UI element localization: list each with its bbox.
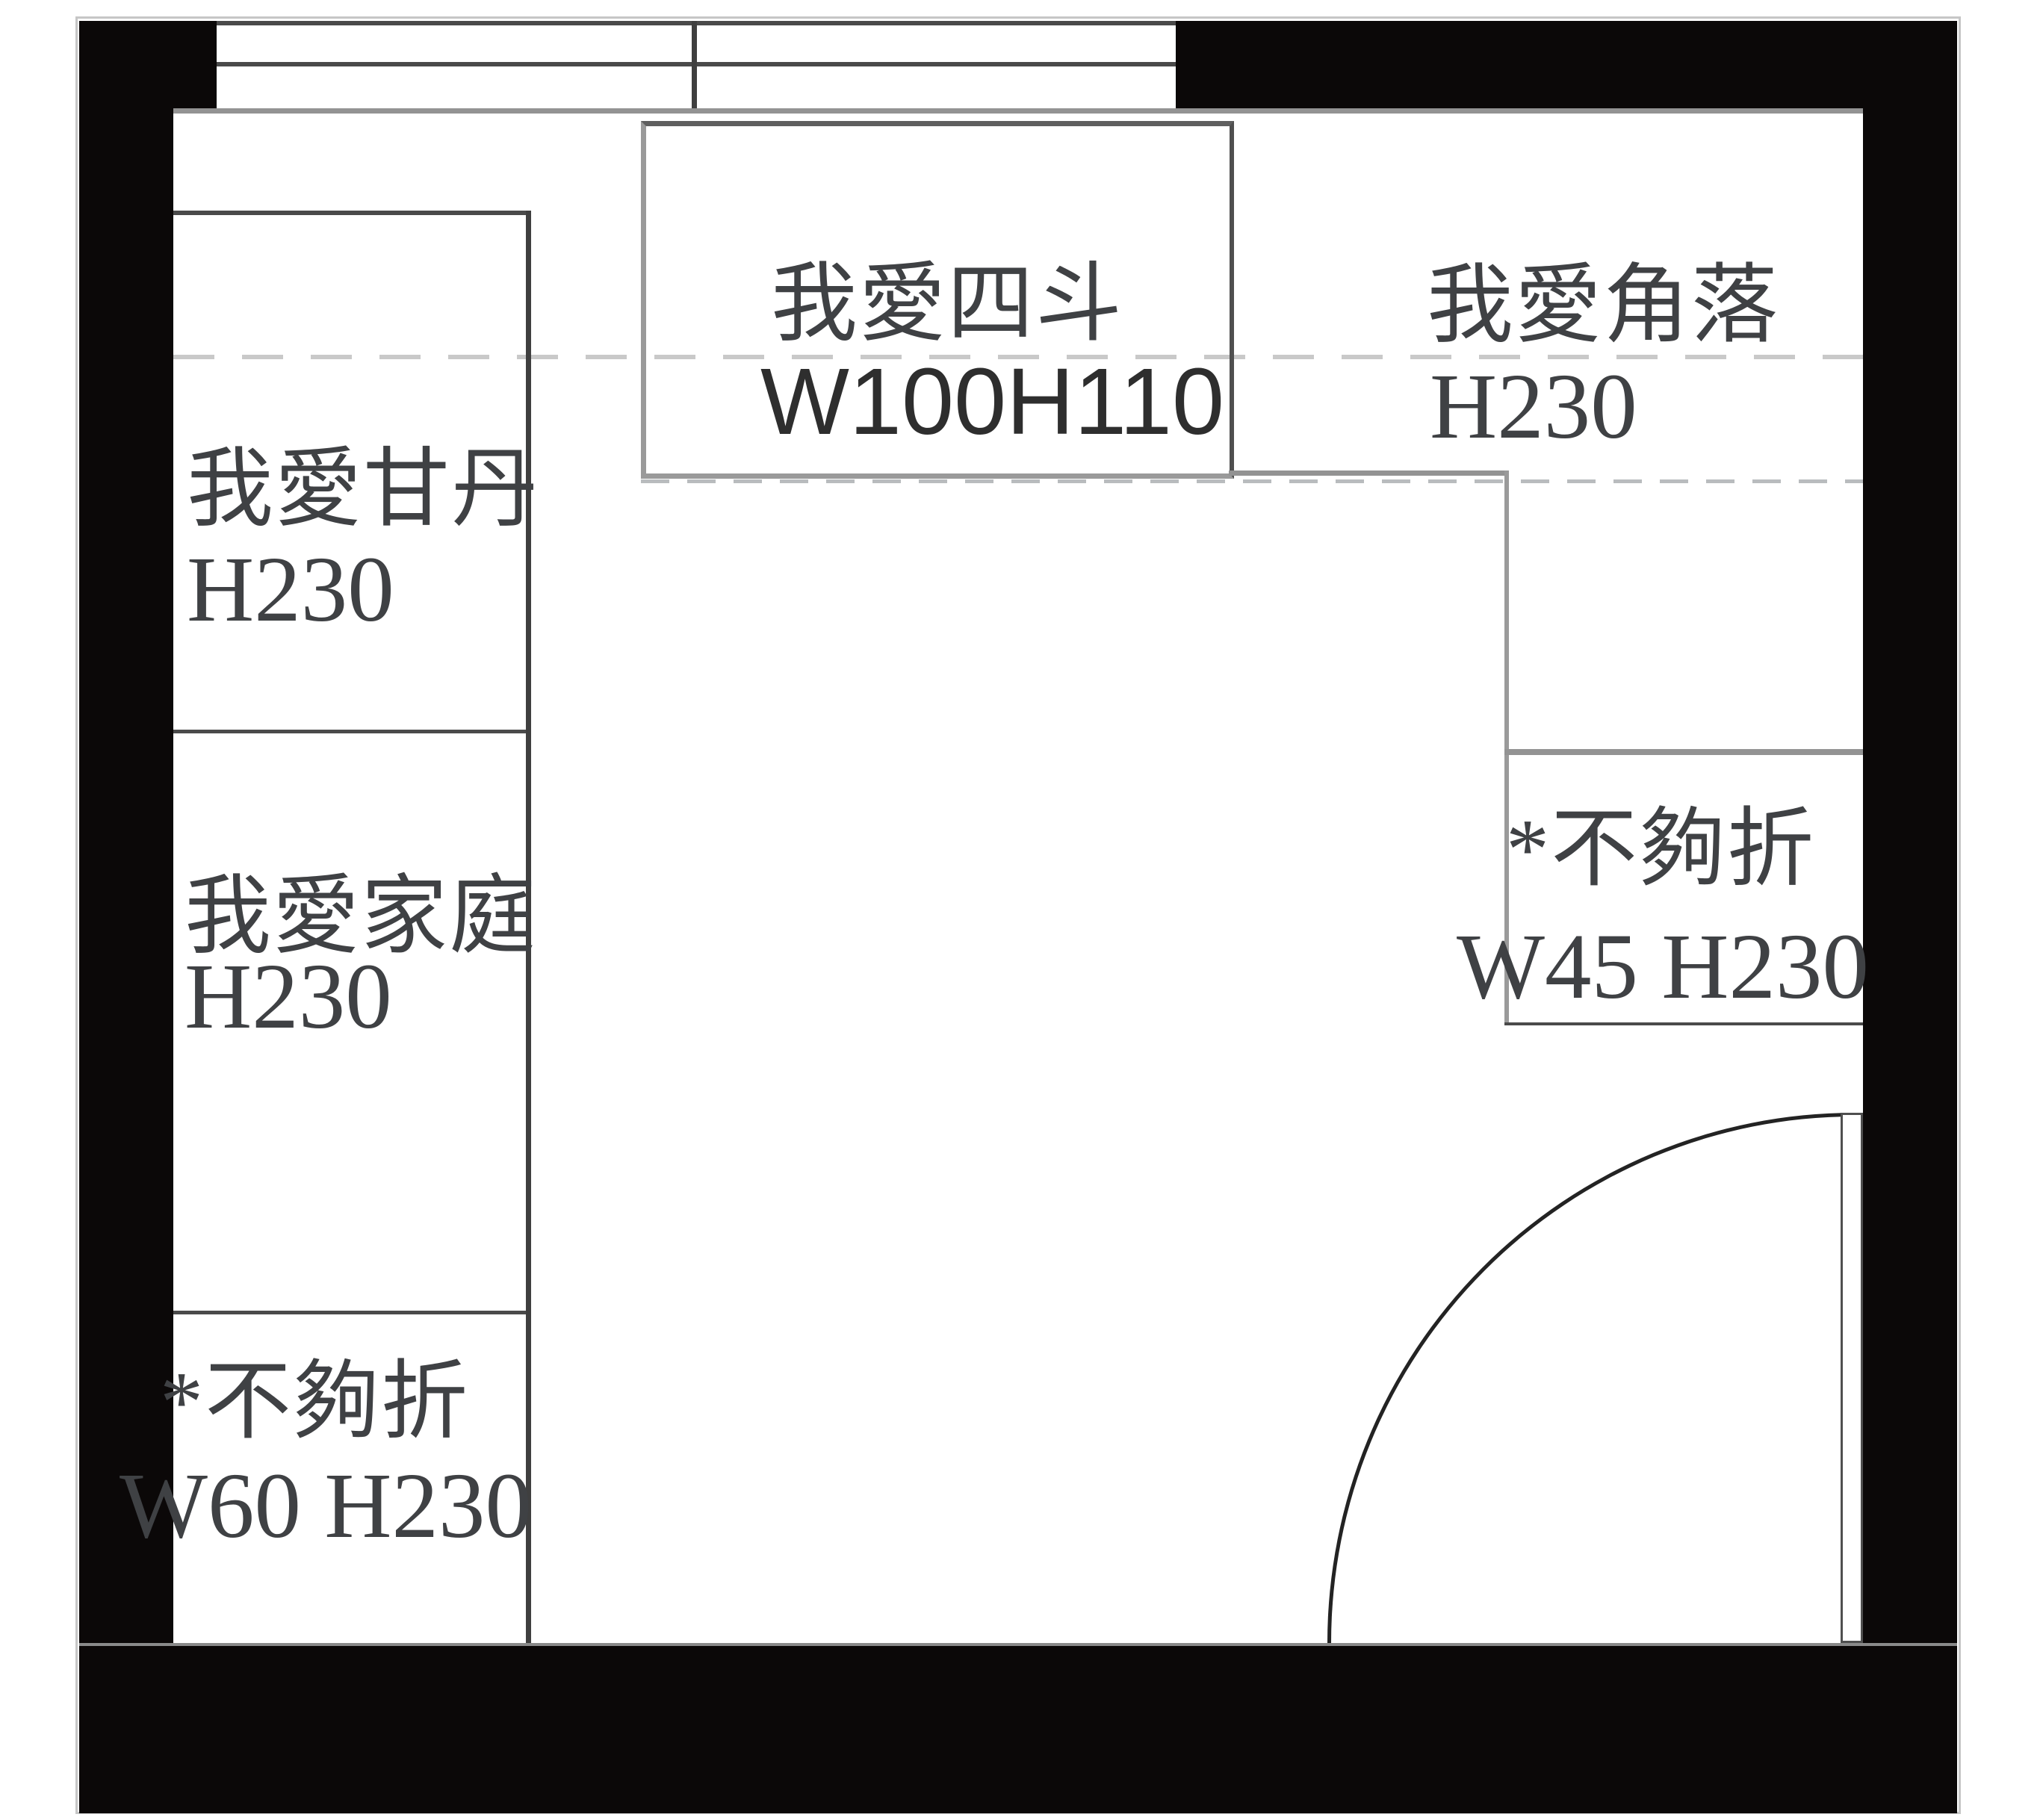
cabinet-top-right-dims: H230 [1430, 361, 1637, 454]
cabinet-right-middle-bottom-line [1504, 1022, 1863, 1025]
wall-top-left-pier [79, 21, 217, 111]
cabinet-left-divider-2 [173, 1311, 526, 1314]
cabinet-right-middle-top-line [1504, 749, 1863, 755]
ceiling-line [173, 108, 1863, 114]
wall-right [1863, 21, 1957, 1810]
cabinet-left-bottom-dims: W60 H230 [120, 1460, 532, 1553]
cabinet-top-center-label: 我愛四斗 [771, 261, 1123, 348]
wall-top [1176, 21, 1957, 111]
cabinet-top-right-label: 我愛角落 [1427, 263, 1779, 350]
door-leaf [1841, 1113, 1863, 1643]
wall-bottom [79, 1643, 1957, 1813]
cabinet-right-middle-dims: W45 H230 [1457, 921, 1869, 1014]
window-row-divider-line [692, 21, 697, 114]
cabinet-left-divider-1 [173, 730, 526, 733]
corner-cabinet-bottom-line [1229, 470, 1509, 476]
cabinet-left-top-dims: H230 [187, 544, 394, 637]
cabinet-left-middle-dims: H230 [185, 951, 392, 1044]
cabinet-left-bottom-label: *不夠折 [160, 1359, 469, 1446]
dashed-projection-line-lower [641, 479, 1863, 483]
cabinet-left-top-label: 我愛甘丹 [187, 447, 539, 533]
cabinet-top-center-dims: W100H110 [760, 355, 1224, 449]
cabinet-column-left-top-line [173, 211, 531, 215]
cabinet-right-middle-label: *不夠折 [1506, 807, 1815, 893]
floor-plan: 我愛甘丹 H230 我愛家庭 H230 *不夠折 W60 H230 我愛四斗 W… [0, 0, 2043, 1820]
